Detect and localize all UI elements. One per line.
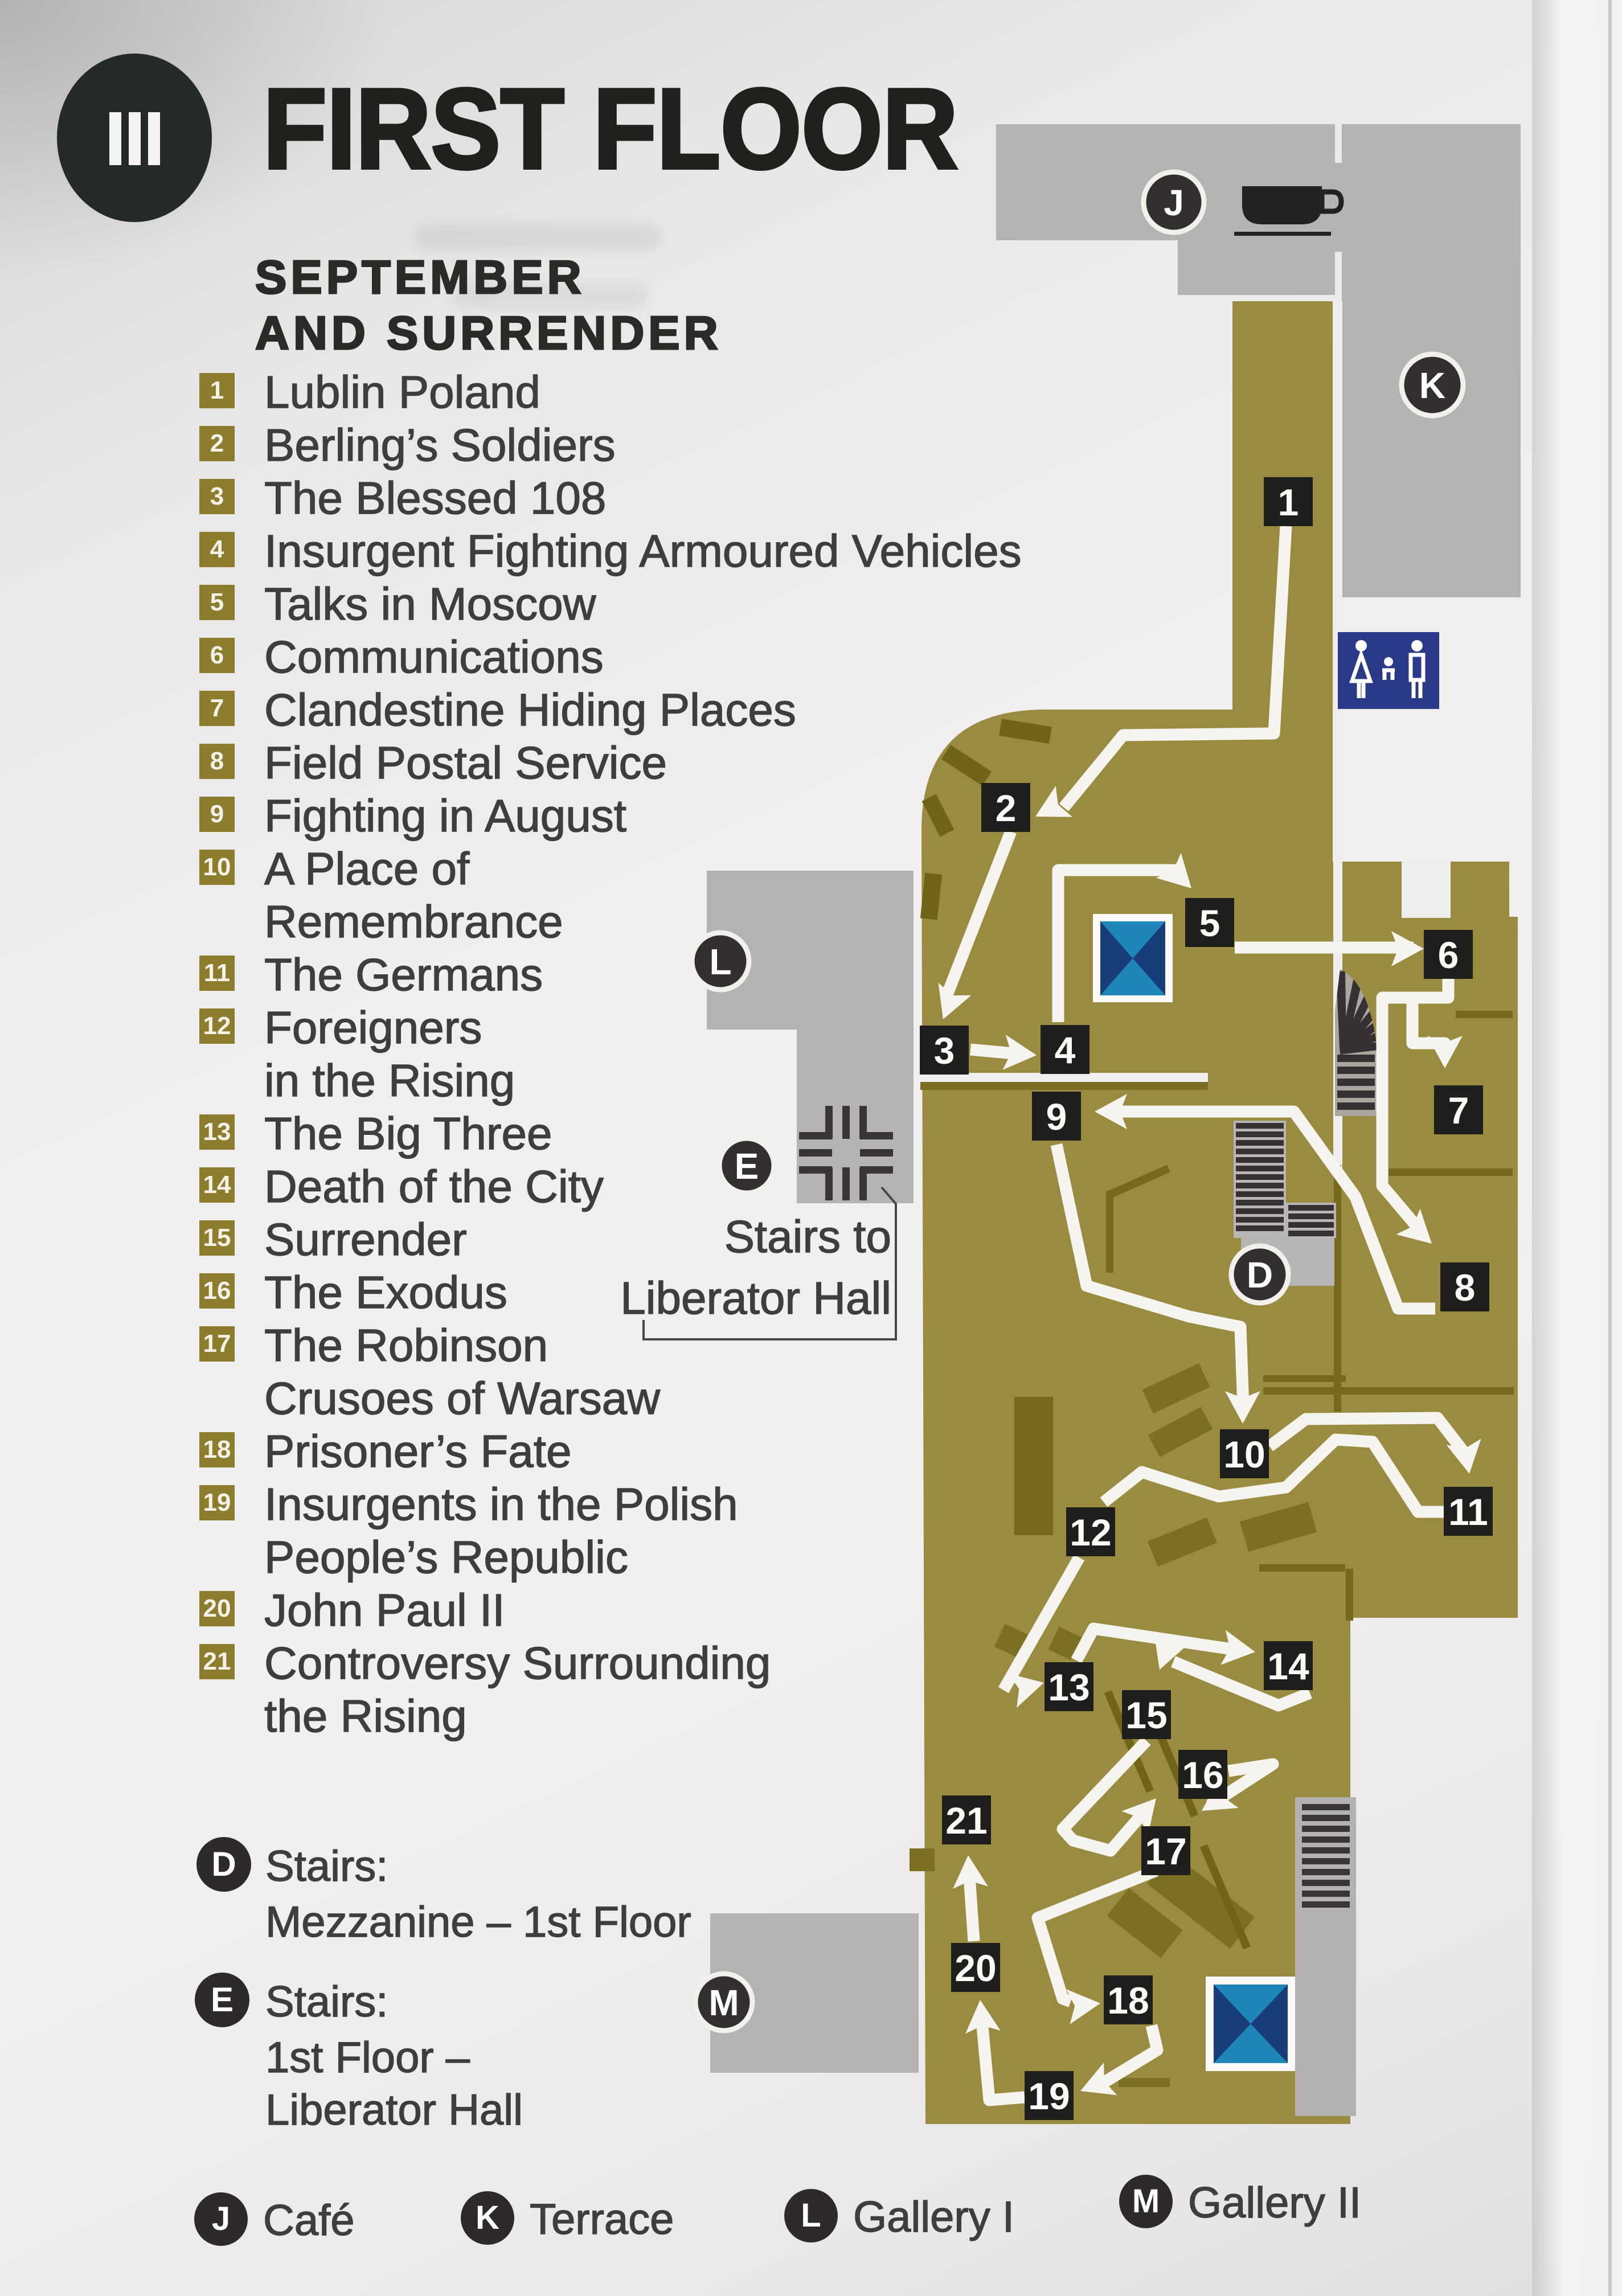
- svg-text:14: 14: [1267, 1645, 1309, 1687]
- svg-text:11: 11: [1448, 1491, 1488, 1533]
- svg-text:2: 2: [996, 787, 1017, 829]
- svg-text:7: 7: [1448, 1089, 1469, 1131]
- svg-text:5: 5: [1199, 902, 1220, 944]
- svg-text:K: K: [1419, 365, 1445, 406]
- svg-text:J: J: [1164, 182, 1184, 223]
- svg-text:9: 9: [1046, 1096, 1067, 1138]
- svg-text:17: 17: [1145, 1830, 1186, 1872]
- svg-text:10: 10: [1223, 1433, 1265, 1475]
- svg-text:13: 13: [1048, 1666, 1089, 1708]
- svg-text:18: 18: [1107, 1979, 1149, 2022]
- svg-text:1: 1: [1278, 481, 1299, 523]
- svg-text:E: E: [735, 1146, 759, 1187]
- svg-text:4: 4: [1055, 1029, 1076, 1071]
- svg-text:3: 3: [934, 1030, 955, 1072]
- svg-text:21: 21: [945, 1799, 987, 1842]
- svg-text:19: 19: [1028, 2075, 1070, 2117]
- svg-text:L: L: [709, 941, 731, 982]
- svg-text:15: 15: [1125, 1694, 1167, 1736]
- svg-text:8: 8: [1455, 1266, 1476, 1309]
- svg-text:6: 6: [1438, 934, 1459, 976]
- svg-text:20: 20: [955, 1947, 996, 1989]
- svg-text:D: D: [1247, 1254, 1273, 1295]
- svg-text:M: M: [708, 1982, 739, 2023]
- svg-text:12: 12: [1070, 1511, 1111, 1553]
- svg-text:16: 16: [1182, 1754, 1223, 1796]
